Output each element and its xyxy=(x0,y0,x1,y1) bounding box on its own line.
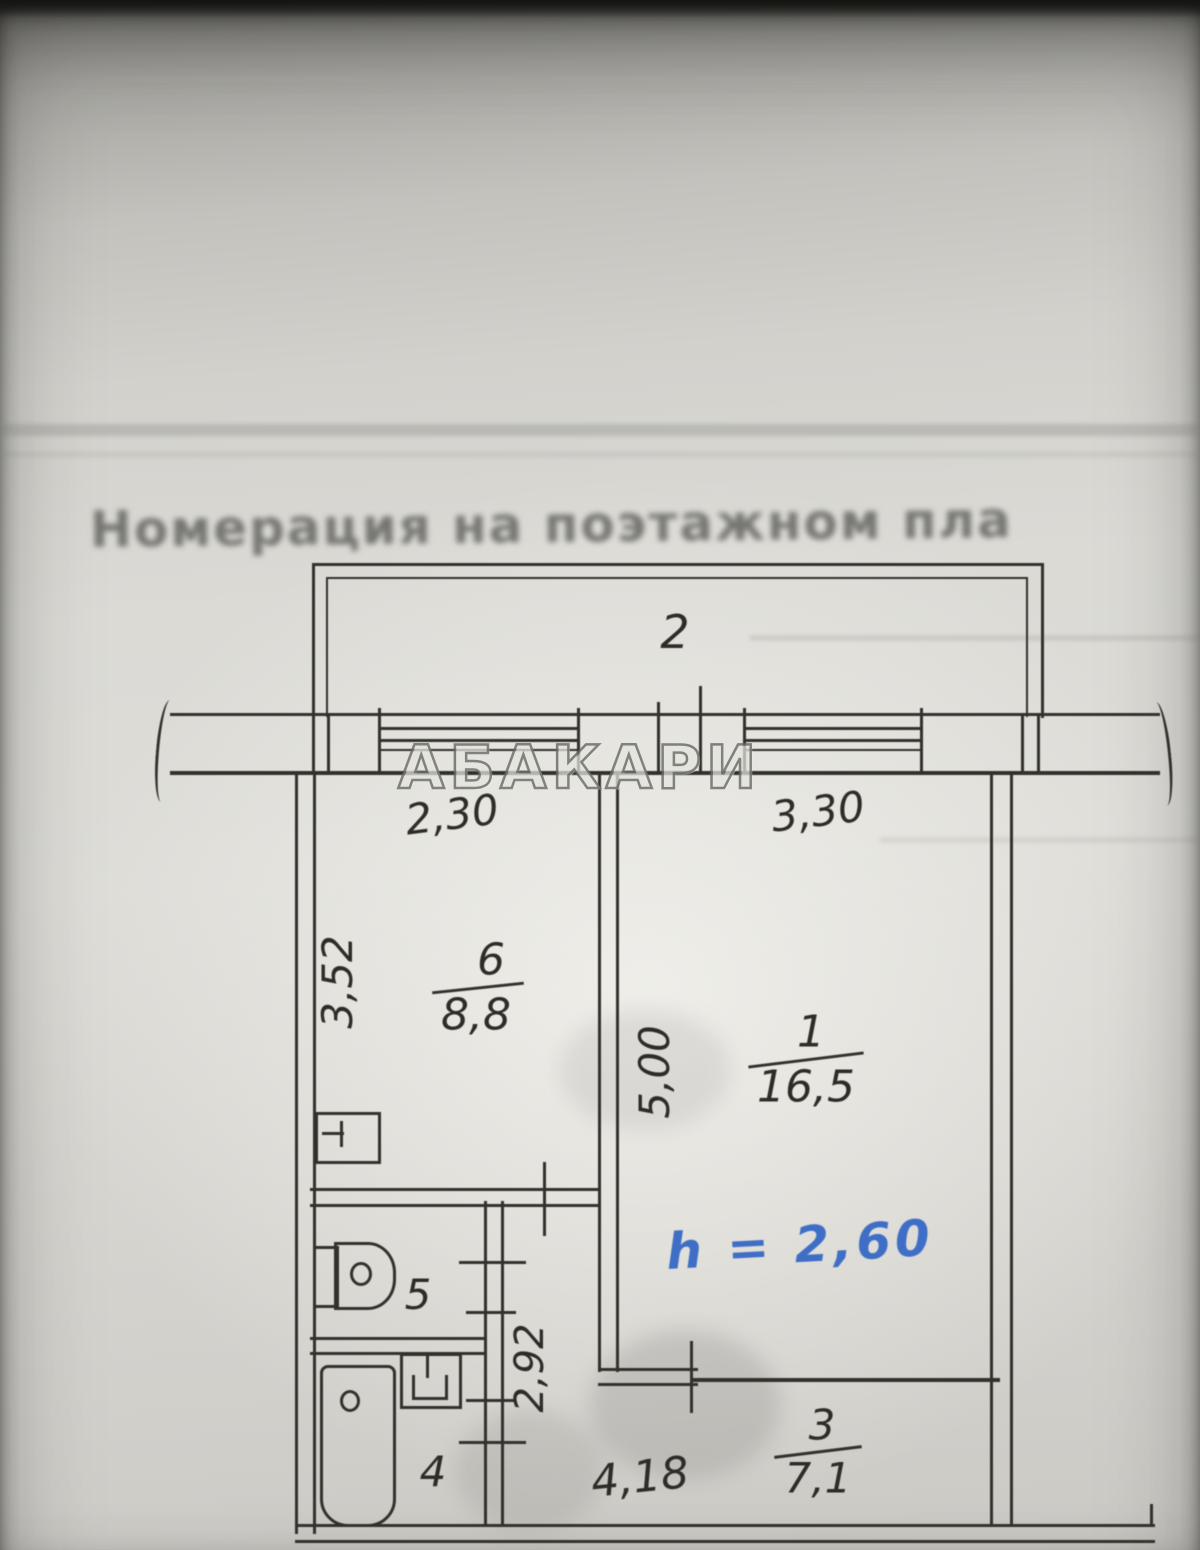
kitchen-room-area: 8,8 xyxy=(428,994,524,1038)
smudge-artifact xyxy=(560,1010,730,1130)
bathtub-drain-circle xyxy=(340,1390,360,1412)
kitchen-fixture xyxy=(315,1112,381,1164)
window-left-glazing xyxy=(381,749,577,751)
toilet-bowl-circle xyxy=(350,1262,372,1286)
bathtub xyxy=(320,1365,396,1527)
bottom-wall xyxy=(295,1524,1155,1543)
bath-room-label: 4 xyxy=(420,1451,447,1493)
watermark: АБАКАРИ xyxy=(398,733,761,803)
door-jamb-tick xyxy=(466,1399,516,1402)
living-room-label: 1 16,5 xyxy=(748,1011,864,1110)
kitchen-room-number: 6 xyxy=(458,939,524,983)
document-line-artifact xyxy=(0,452,1200,457)
door-jamb-tick xyxy=(459,1261,526,1264)
sink xyxy=(400,1353,462,1409)
hall-door-jamb xyxy=(690,1341,693,1413)
balcony-post xyxy=(327,713,330,771)
wall-break-right xyxy=(1147,701,1177,806)
living-room-area: 16,5 xyxy=(748,1066,864,1110)
bottom-wall-end-tick xyxy=(1150,1504,1153,1527)
toilet-bath-wall xyxy=(310,1337,484,1355)
window-jamb xyxy=(920,708,923,771)
left-wall xyxy=(295,771,316,1534)
toilet-bowl xyxy=(334,1242,396,1310)
fraction-bar xyxy=(432,982,524,995)
smudge-artifact xyxy=(590,1330,780,1480)
living-bottom-wall xyxy=(598,1368,698,1386)
kitchen-door-jamb xyxy=(543,1162,546,1236)
kitchen-bottom-wall xyxy=(310,1188,600,1207)
kitchen-fixture-detail xyxy=(322,1132,344,1135)
dimension-kitchen-depth: 3,52 xyxy=(317,935,359,1029)
partition-kitchen-living xyxy=(598,771,619,1372)
hall-room-label: 3 7,1 xyxy=(774,1405,862,1500)
sink-basin xyxy=(412,1375,448,1400)
window-right-glazing xyxy=(746,739,920,742)
door-jamb-tick xyxy=(466,1311,516,1314)
window-jamb xyxy=(378,708,381,771)
document-line-artifact xyxy=(0,424,1200,436)
exterior-wall xyxy=(170,713,1160,775)
toilet-room-label: 5 xyxy=(405,1274,432,1316)
photo-top-edge xyxy=(0,0,1200,18)
window-left-glazing xyxy=(381,727,577,730)
document-line-artifact xyxy=(750,636,1200,640)
living-bottom-wall-single xyxy=(690,1378,1000,1382)
fraction-bar xyxy=(774,1445,862,1459)
dimension-corridor-depth: 2,92 xyxy=(510,1323,550,1412)
document-line-artifact xyxy=(880,838,1200,842)
smudge-artifact xyxy=(455,1410,605,1530)
door-jamb xyxy=(657,702,660,771)
hall-room-number: 3 xyxy=(782,1405,862,1447)
living-room-number: 1 xyxy=(758,1011,864,1055)
dimension-living-depth: 5,00 xyxy=(634,1025,676,1119)
hall-room-area: 7,1 xyxy=(774,1458,862,1500)
window-jamb xyxy=(743,708,746,771)
balcony-door-frame xyxy=(699,686,702,771)
door-jamb-tick xyxy=(459,1441,526,1444)
window-right-glazing xyxy=(746,749,920,751)
window-left-glazing xyxy=(381,739,577,742)
balcony-outline-outer xyxy=(312,563,1044,718)
balcony-post xyxy=(312,713,315,771)
balcony-outline-inner xyxy=(326,577,1028,717)
fraction-bar xyxy=(748,1051,864,1068)
floor-plan-photo: Номерация на поэтажном пла xyxy=(0,0,1200,1550)
right-wall xyxy=(990,771,1013,1526)
wall-break-left xyxy=(152,699,180,802)
faded-heading: Номерация на поэтажном пла xyxy=(90,491,1013,559)
balcony-post xyxy=(1037,713,1040,771)
kitchen-room-label: 6 8,8 xyxy=(432,939,524,1038)
dimension-window-left: 2,30 xyxy=(403,788,501,841)
sink-detail xyxy=(426,1353,429,1378)
dimension-bottom-width: 4,18 xyxy=(589,1451,691,1505)
balcony-label: 2 xyxy=(660,609,689,655)
toilet-tank xyxy=(313,1246,339,1308)
window-jamb xyxy=(577,708,580,771)
kitchen-fixture-detail xyxy=(340,1121,343,1147)
corridor-partition xyxy=(484,1201,504,1526)
balcony-post xyxy=(1021,713,1024,771)
ceiling-height-note: h = 2,60 xyxy=(665,1213,935,1277)
window-right-glazing xyxy=(746,727,920,730)
dimension-window-right: 3,30 xyxy=(769,785,867,838)
